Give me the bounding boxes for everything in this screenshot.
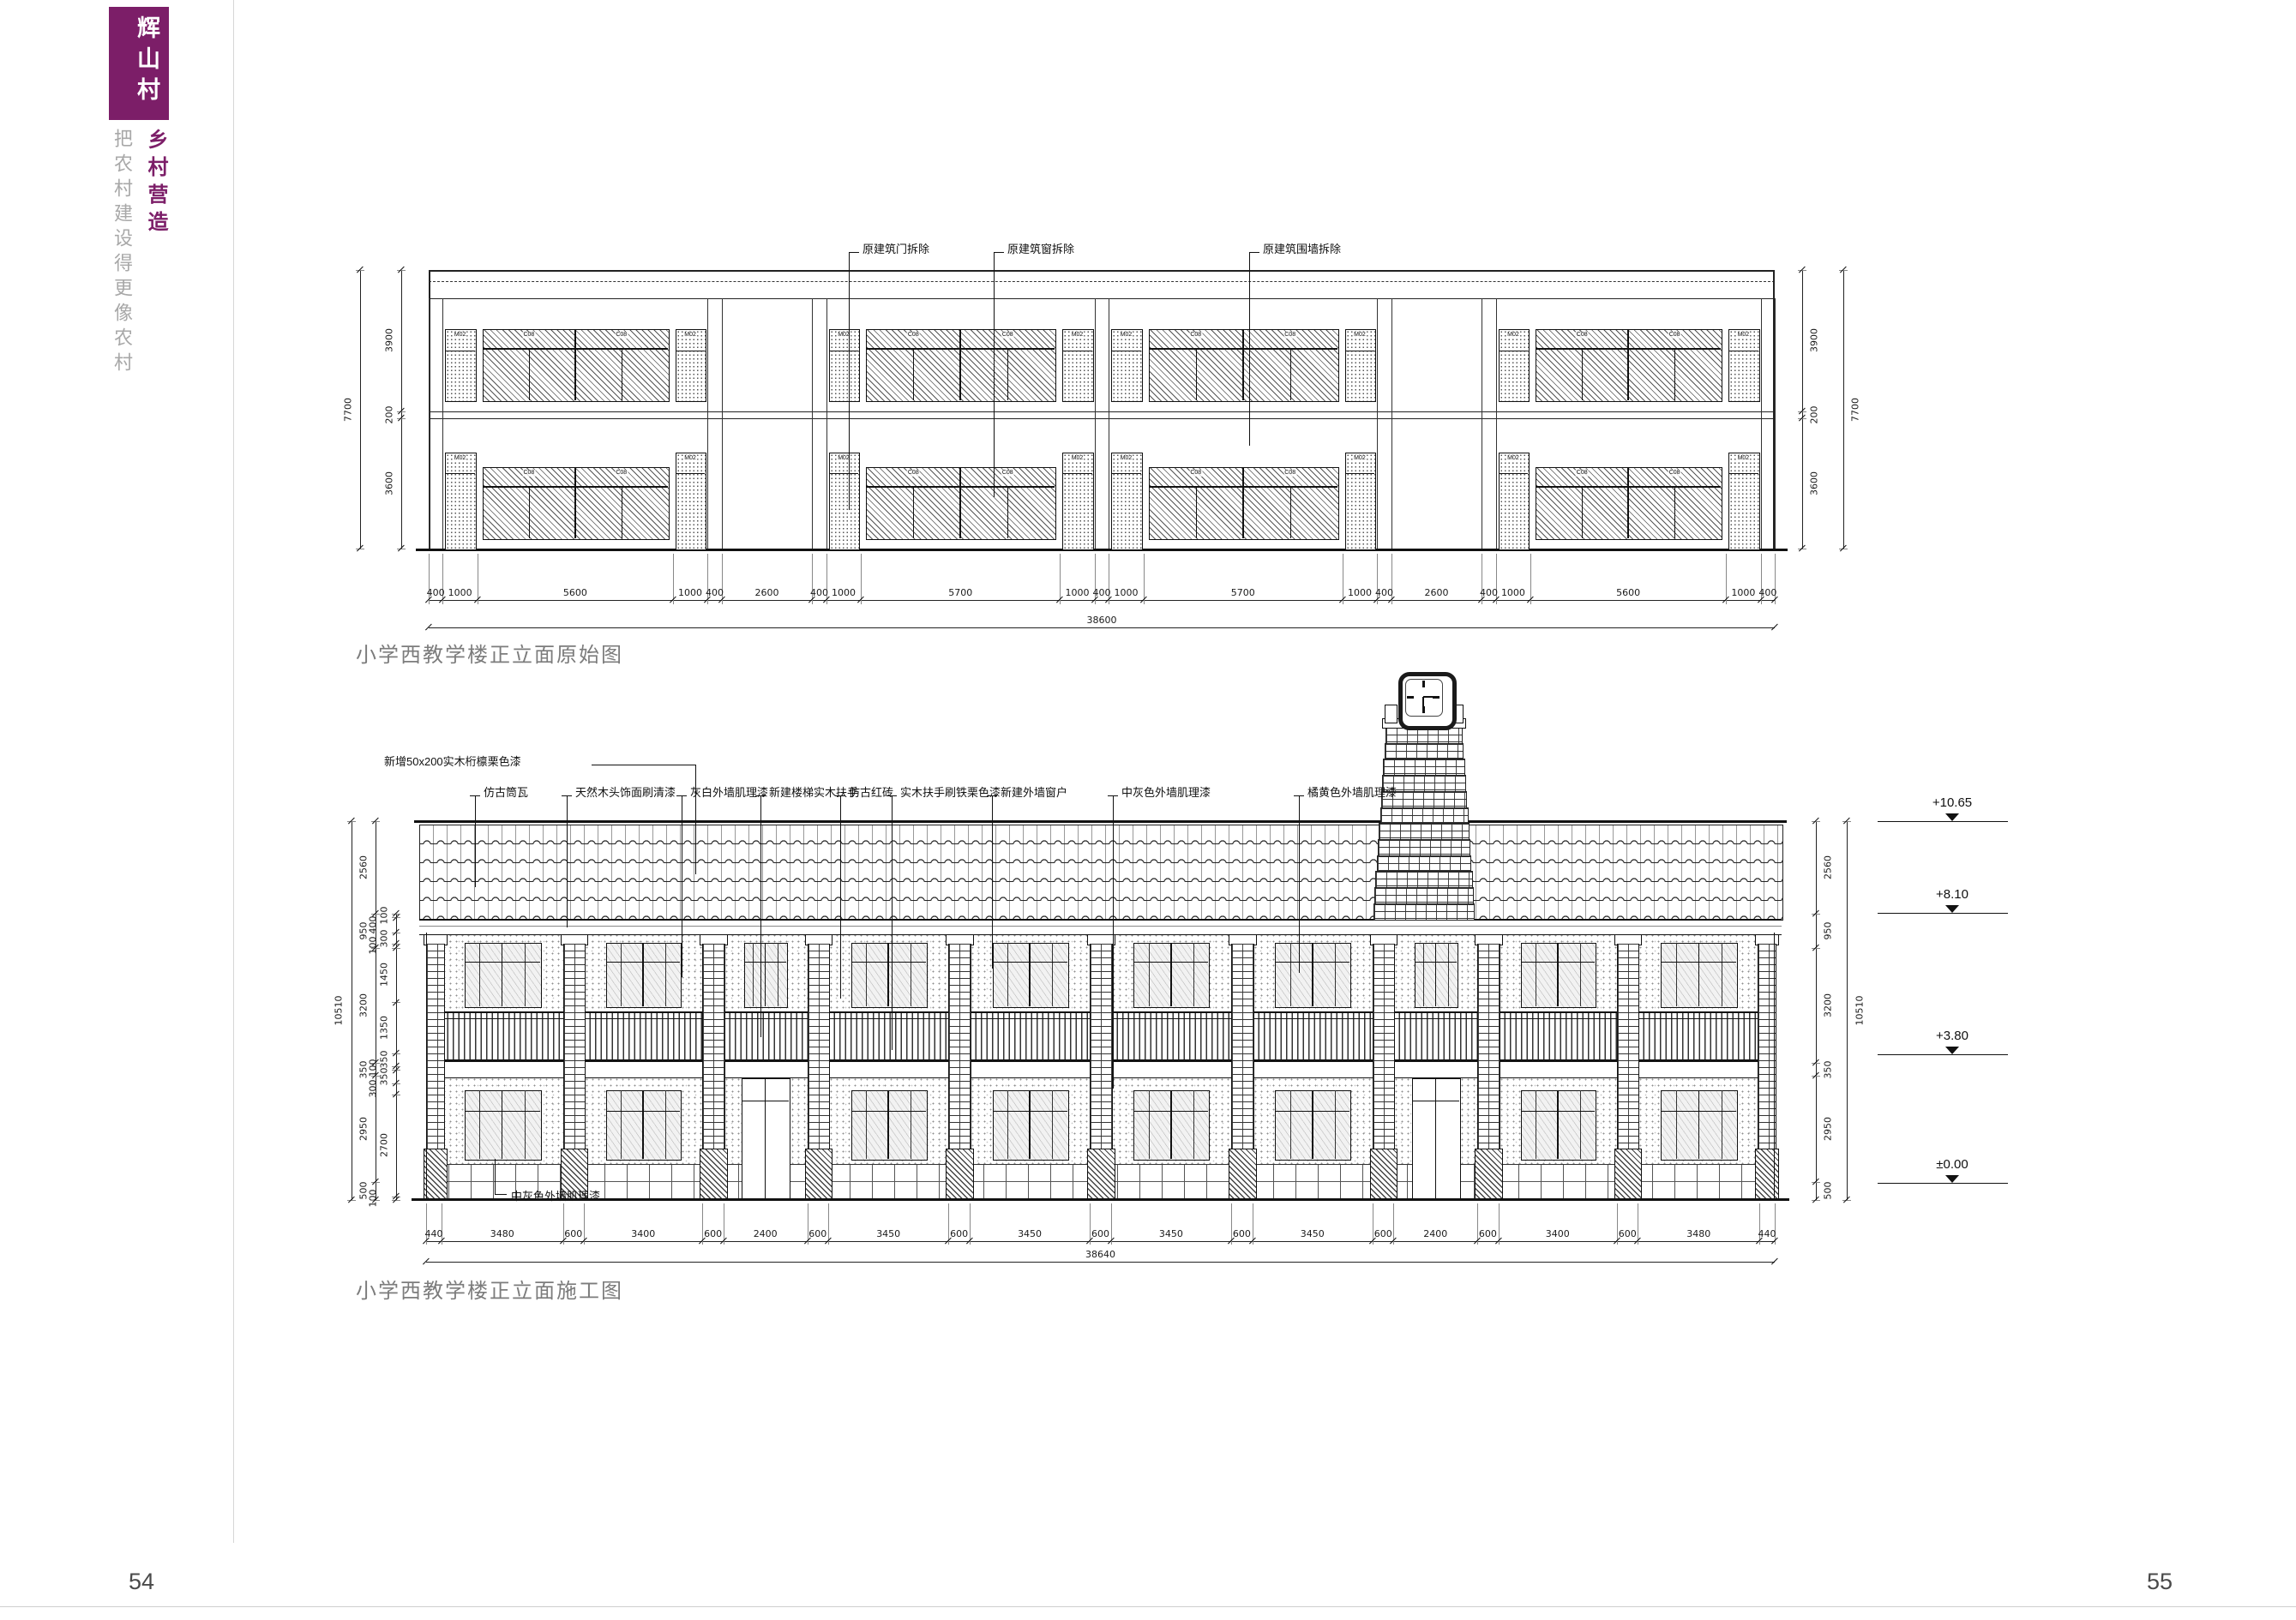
pier-plinth (805, 1149, 832, 1200)
dim-line (352, 821, 352, 1200)
window-mullion (622, 348, 622, 400)
dim-label: 600 (1233, 1228, 1251, 1239)
window-mullion (913, 486, 914, 538)
wall-right-edge (1774, 933, 1775, 1198)
narrow-opening (1499, 329, 1530, 402)
callout-label: 新建楼梯实木扶手 (769, 783, 858, 800)
entry-door-opening (1412, 1078, 1461, 1200)
narrow-opening (445, 329, 477, 402)
window-mullion (1149, 1090, 1150, 1159)
window-mullion (621, 943, 622, 1006)
window-mullion (665, 1090, 666, 1159)
window-transom-line (851, 962, 926, 963)
window-mullion (525, 943, 526, 1006)
opening-code-label: C08 (907, 470, 920, 477)
dim-label: 500 (358, 1182, 370, 1200)
dim-label: 600 (1619, 1228, 1637, 1239)
window-transom-line (1521, 1111, 1595, 1112)
dim-label: 3200 (358, 993, 370, 1017)
footer-rule (0, 1606, 2296, 1607)
window-transom-line (606, 1111, 680, 1112)
opening-code-label: C08 (1576, 332, 1589, 339)
window-transom-line (851, 1111, 926, 1112)
callout-label: 实木扶手刷铁栗色漆 (900, 783, 1001, 800)
book-tagline: 把农村建设得更像农村 (108, 129, 135, 377)
transom-line (829, 351, 859, 351)
door-opening (829, 453, 861, 550)
opening-code-label: C08 (1001, 332, 1014, 339)
door-transom-line (1412, 1101, 1459, 1101)
dim-label: 400 (1375, 587, 1393, 598)
bay-divider-line (442, 298, 443, 549)
opening-code-label: M02 (1353, 332, 1367, 339)
clock-tower-brick-course (1377, 855, 1472, 873)
callout-leader-line (760, 795, 761, 1037)
narrow-opening (676, 329, 707, 402)
dim-label: 2700 (379, 1133, 390, 1157)
door-opening (1499, 453, 1530, 550)
opening-code-label: M02 (454, 332, 467, 339)
window-mullion (1674, 486, 1675, 538)
callout-label: 新增50x200实木桁檩栗色漆 (384, 753, 521, 769)
door-opening (1111, 453, 1143, 550)
callout-leader-line (1249, 252, 1250, 446)
dim-label: 950 (1823, 921, 1834, 939)
window-mullion (1582, 348, 1583, 400)
dim-label: 3600 (384, 471, 395, 495)
bay-divider-line (1482, 298, 1482, 549)
opening-code-label: M02 (1506, 332, 1520, 339)
dim-label: 950 (358, 921, 370, 939)
window-mullion (1312, 1090, 1313, 1159)
door-opening (676, 453, 707, 550)
callout-leader-line (992, 795, 993, 969)
opening-code-label: C08 (1189, 332, 1202, 339)
roof-ridge-line (414, 820, 1787, 823)
callout-label: 橘黄色外墙肌理漆 (1307, 783, 1397, 800)
dim-label: 7700 (1850, 398, 1861, 422)
dim-label: 3450 (1018, 1228, 1042, 1239)
lower-window (606, 1090, 682, 1161)
callout-leader-line (495, 1159, 496, 1195)
dim-label: 350 (358, 1060, 370, 1078)
callout-label: 中灰色外墙肌理漆 (511, 1187, 600, 1203)
door-transom-line (829, 473, 859, 474)
opening-code-label: M02 (1071, 455, 1085, 462)
elevation-marker-triangle (1945, 905, 1959, 913)
dim-label: 5700 (1231, 587, 1255, 598)
dim-label: 400 (1480, 587, 1498, 598)
pier-plinth (946, 1149, 973, 1200)
bay-divider-line (707, 298, 708, 549)
clock-tower-brick-course (1374, 887, 1474, 905)
dim-label: 600 (950, 1228, 968, 1239)
door-transom-line (676, 473, 706, 474)
dim-label: 1000 (448, 587, 472, 598)
callout-leader-line (849, 252, 859, 253)
door-opening (1728, 453, 1760, 550)
narrow-opening (1111, 329, 1143, 402)
window-mullion (913, 348, 914, 400)
window-center-mullion (574, 467, 576, 538)
dim-label: 1000 (1501, 587, 1525, 598)
window-transom-line (1661, 962, 1736, 963)
window-mullion (1312, 943, 1313, 1006)
dim-line (1843, 270, 1844, 549)
callout-leader-line (475, 795, 476, 887)
lower-window (993, 1090, 1069, 1161)
railing-mid-rail (828, 1018, 948, 1019)
window-mullion (866, 1090, 867, 1159)
dim-label: 3600 (1809, 471, 1820, 495)
upper-window (744, 943, 788, 1008)
dim-label: 1000 (1066, 587, 1090, 598)
transom-line (1062, 351, 1092, 351)
narrow-opening (1345, 329, 1377, 402)
dim-label: 350 (379, 1068, 390, 1086)
window-mullion (1149, 943, 1150, 1006)
window-mullion (1193, 943, 1194, 1006)
village-title: 辉山村 (114, 15, 164, 108)
opening-code-label: M02 (683, 332, 697, 339)
opening-code-label: C08 (1576, 470, 1589, 477)
fascia-mid-line (419, 926, 1782, 927)
window-mullion (1193, 1090, 1194, 1159)
transom-line (676, 351, 706, 351)
opening-code-label: M02 (1120, 455, 1133, 462)
window-mullion (1170, 943, 1172, 1006)
railing-mid-rail (724, 1018, 808, 1019)
roof-tiles (419, 825, 1783, 921)
callout-label: 天然木头饰面刷清漆 (575, 783, 676, 800)
parapet-top-line (429, 270, 1775, 272)
window-mullion (1052, 1090, 1053, 1159)
window-center-mullion (574, 329, 576, 400)
callout-leader-line (840, 795, 841, 999)
lower-window (1133, 1090, 1210, 1161)
opening-code-label: C08 (522, 332, 535, 339)
railing-mid-rail (1499, 1018, 1617, 1019)
dim-label: 300 (379, 929, 390, 947)
opening-code-label: M02 (1506, 455, 1520, 462)
dim-label: 3400 (631, 1228, 655, 1239)
window-mullion (1582, 486, 1583, 538)
upper-window (606, 943, 682, 1008)
lower-window (851, 1090, 928, 1161)
dim-label: 2950 (358, 1117, 370, 1141)
transom-line (445, 351, 475, 351)
railing-mid-rail (1638, 1018, 1759, 1019)
wide-window (1536, 467, 1722, 540)
window-mullion (1435, 943, 1437, 1006)
floor-slab-line (429, 411, 1775, 412)
callout-leader-line (1299, 795, 1300, 973)
dim-label: 500 (1823, 1182, 1834, 1200)
window-mullion (1029, 943, 1031, 1006)
window-mullion (1290, 1090, 1291, 1159)
window-mullion (1722, 943, 1722, 1006)
window-mullion (1448, 943, 1449, 1006)
railing-mid-rail (1253, 1018, 1373, 1019)
callout-leader-line (592, 765, 696, 765)
window-transom-line (1133, 962, 1208, 963)
clock-hand-hour (1423, 696, 1436, 699)
elevation-value-label: +8.10 (1936, 887, 1968, 902)
dim-label: 1000 (832, 587, 856, 598)
dim-label: 1000 (678, 587, 702, 598)
callout-label: 中灰色外墙肌理漆 (1121, 783, 1211, 800)
parapet-bottom-line (429, 298, 1775, 299)
callout-label: 原建筑窗拆除 (1007, 240, 1074, 256)
wall-left-edge (426, 933, 427, 1198)
dim-label: 7700 (343, 398, 354, 422)
narrow-opening (1728, 329, 1760, 402)
elevation-level-line (1878, 821, 2008, 822)
dim-label: 600 (1374, 1228, 1392, 1239)
dim-label: 100 (379, 907, 390, 925)
opening-code-label: C08 (615, 332, 628, 339)
parapet-dashed-line (429, 281, 1775, 282)
callout-leader-line (994, 252, 1004, 253)
window-mullion (765, 943, 766, 1006)
window-mullion (1536, 1090, 1536, 1159)
bay-divider-line (826, 298, 827, 549)
window-mullion (1196, 486, 1197, 538)
window-mullion (753, 943, 754, 1006)
railing-mid-rail (1393, 1018, 1477, 1019)
dim-label: 2950 (1823, 1117, 1834, 1141)
window-mullion (622, 486, 622, 538)
dim-label: 2600 (1424, 587, 1448, 598)
bay-divider-line (1391, 298, 1392, 549)
window-mullion (1007, 943, 1008, 1006)
door-transom-line (445, 473, 475, 474)
door-transom-line (1728, 473, 1758, 474)
opening-code-label: C08 (1001, 470, 1014, 477)
window-mullion (642, 1090, 644, 1159)
window-center-mullion (1627, 467, 1629, 538)
window-mullion (1580, 1090, 1581, 1159)
entry-door-opening (742, 1078, 790, 1200)
clock-tower-brick-course (1375, 871, 1472, 889)
pier-plinth (1755, 1149, 1779, 1200)
dim-line (426, 1262, 1775, 1263)
opening-code-label: C08 (522, 470, 535, 477)
window-mullion (479, 1090, 480, 1159)
door-opening (445, 453, 477, 550)
dim-label: 38640 (1085, 1249, 1115, 1260)
dim-line (426, 1241, 1775, 1242)
window-mullion (529, 486, 530, 538)
callout-label: 灰白外墙肌理漆 (690, 783, 768, 800)
narrow-opening (1062, 329, 1094, 402)
dim-line (429, 600, 1775, 601)
window-mullion (1007, 486, 1008, 538)
dim-label: 3900 (1809, 328, 1820, 352)
window-mullion (1580, 943, 1581, 1006)
window-mullion (1029, 1090, 1031, 1159)
door-center-line (765, 1078, 766, 1198)
pier-plinth (700, 1149, 727, 1200)
elevation-value-label: ±0.00 (1936, 1157, 1968, 1172)
window-mullion (1722, 1090, 1722, 1159)
window-mullion (1674, 348, 1675, 400)
elevation-value-label: +10.65 (1932, 795, 1972, 810)
door-transom-line (1111, 473, 1141, 474)
window-mullion (1536, 943, 1536, 1006)
upper-window (1133, 943, 1210, 1008)
dim-label: 400 (706, 587, 724, 598)
elevation-value-label: +3.80 (1936, 1029, 1968, 1043)
window-mullion (778, 943, 778, 1006)
bay-divider-line (1109, 298, 1109, 549)
callout-leader-line (849, 252, 850, 510)
elevation-level-line (1878, 913, 2008, 914)
pier-plinth (1614, 1149, 1642, 1200)
dim-label: 3450 (876, 1228, 900, 1239)
callout-label: 原建筑围墙拆除 (1263, 240, 1341, 256)
clock-tower-brick-course (1385, 743, 1464, 761)
upper-window (465, 943, 542, 1008)
window-mullion (887, 1090, 889, 1159)
bay-divider-line (429, 298, 430, 549)
opening-code-label: M02 (1737, 332, 1751, 339)
dim-label: 400 (1758, 587, 1776, 598)
dim-label: 2400 (754, 1228, 778, 1239)
dim-extension (673, 554, 674, 604)
dim-line (1816, 821, 1817, 1200)
window-center-mullion (1242, 329, 1244, 400)
bay-divider-line (1775, 298, 1776, 549)
opening-code-label: M02 (1737, 455, 1751, 462)
window-mullion (1676, 1090, 1677, 1159)
window-mullion (1290, 943, 1291, 1006)
clock-tower-brick-course (1378, 839, 1470, 857)
window-mullion (502, 1090, 503, 1159)
dim-line (396, 914, 397, 1200)
dim-label: 400 (1093, 587, 1111, 598)
dim-label: 5700 (948, 587, 972, 598)
floor-slab-line (429, 418, 1775, 419)
callout-leader-line (994, 252, 995, 497)
window-transom-line (465, 962, 540, 963)
dim-label: 3400 (1546, 1228, 1570, 1239)
window-mullion (665, 943, 666, 1006)
dim-label: 2560 (358, 855, 370, 879)
dim-label: 3480 (490, 1228, 514, 1239)
door-transom-line (742, 1101, 789, 1101)
window-center-mullion (959, 467, 961, 538)
window-transom-line (606, 962, 680, 963)
upper-window (1661, 943, 1738, 1008)
dim-label: 3450 (1301, 1228, 1325, 1239)
dim-label: 1450 (379, 963, 390, 987)
window-mullion (887, 943, 889, 1006)
door-transom-line (1499, 473, 1529, 474)
callout-leader-tick (495, 1194, 507, 1195)
window-center-mullion (1627, 329, 1629, 400)
dim-label: 38600 (1087, 615, 1117, 626)
elevation-marker-triangle (1945, 1175, 1959, 1183)
window-transom-line (1415, 962, 1457, 963)
ground-line (416, 549, 1788, 551)
railing-mid-rail (1111, 1018, 1231, 1019)
window-mullion (1557, 943, 1559, 1006)
clock-tick-12 (1422, 681, 1425, 687)
window-mullion (1290, 486, 1291, 538)
door-opening (1345, 453, 1377, 550)
dim-label: 1350 (379, 1016, 390, 1040)
sidebar-divider-line (233, 0, 234, 1543)
opening-code-label: M02 (1353, 455, 1367, 462)
dim-label: 350 (1823, 1060, 1834, 1078)
elevation-level-line (1878, 1183, 2008, 1184)
dim-label: 440 (424, 1228, 442, 1239)
transom-line (1499, 351, 1529, 351)
dim-label: 600 (564, 1228, 582, 1239)
dim-label: 3200 (1823, 993, 1834, 1017)
clock-tower-brick-course (1383, 759, 1464, 777)
railing-mid-rail (442, 1018, 563, 1019)
dim-line (360, 270, 361, 549)
dim-label: 2400 (1423, 1228, 1447, 1239)
dim-label: 1000 (1348, 587, 1372, 598)
wide-window (1536, 329, 1722, 402)
dim-label: 200 (384, 405, 395, 423)
roof-fascia (419, 919, 1782, 935)
dim-label: 1000 (1731, 587, 1755, 598)
dim-tick (1771, 1258, 1778, 1265)
callout-label: 仿古红砖 (849, 783, 893, 800)
bay-divider-line (1377, 298, 1378, 549)
window-center-mullion (1242, 467, 1244, 538)
elevation-marker-triangle (1945, 813, 1959, 821)
callout-leader-line (1249, 252, 1259, 253)
opening-code-label: C08 (1283, 470, 1296, 477)
dim-label: 350 (379, 1051, 390, 1069)
dim-label: 10510 (334, 996, 345, 1026)
window-mullion (1007, 1090, 1008, 1159)
upper-window (851, 943, 928, 1008)
dim-label: 440 (1758, 1228, 1776, 1239)
window-transom-line (993, 962, 1067, 963)
door-center-line (1435, 1078, 1437, 1198)
window-mullion (1170, 1090, 1172, 1159)
pier-plinth (1370, 1149, 1397, 1200)
dim-label: 600 (704, 1228, 722, 1239)
opening-code-label: M02 (454, 455, 467, 462)
window-mullion (1007, 348, 1008, 400)
window-mullion (911, 1090, 911, 1159)
page-number-right: 55 (2147, 1569, 2173, 1595)
window-mullion (1698, 943, 1700, 1006)
window-mullion (1290, 348, 1291, 400)
window-transom-line (1521, 962, 1595, 963)
transom-line (1345, 351, 1375, 351)
window-mullion (1335, 943, 1336, 1006)
dim-label: 1000 (1114, 587, 1138, 598)
opening-code-label: C08 (615, 470, 628, 477)
transom-line (1728, 351, 1758, 351)
window-mullion (866, 943, 867, 1006)
callout-label: 新建外墙窗户 (1001, 783, 1067, 800)
pier-plinth (1229, 1149, 1256, 1200)
window-mullion (642, 943, 644, 1006)
lower-window (1275, 1090, 1351, 1161)
window-mullion (621, 1090, 622, 1159)
door-transom-line (1345, 473, 1375, 474)
door-opening (1062, 453, 1094, 550)
